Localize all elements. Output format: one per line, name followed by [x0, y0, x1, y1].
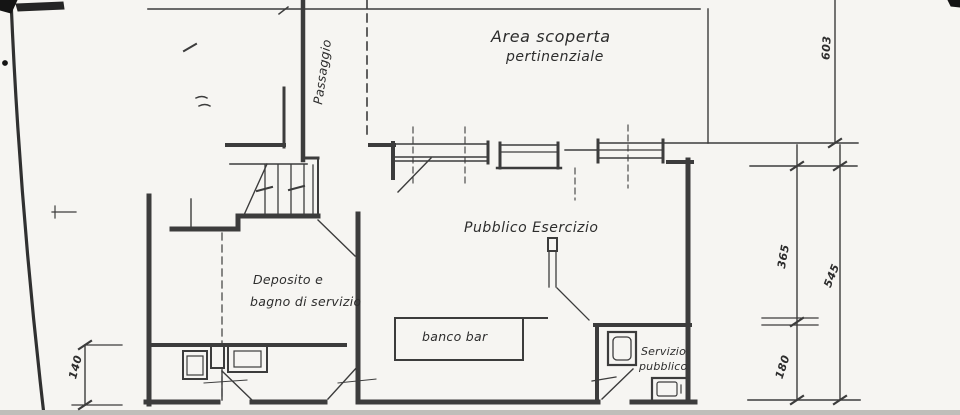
dim-text-180: 180	[773, 353, 793, 380]
dim-text-545: 545	[821, 262, 842, 289]
label-pubblico-esercizio: Pubblico Esercizio	[464, 220, 598, 236]
fixture-icon-inner	[187, 356, 203, 375]
sink-icon-inner	[657, 382, 677, 396]
door-swing	[557, 288, 589, 320]
label-servizio-line1: Servizio	[641, 345, 686, 358]
door-swing	[398, 158, 431, 192]
column	[548, 238, 557, 251]
pen-squiggle-mark	[196, 97, 210, 107]
dimension-annotations	[72, 0, 860, 409]
scanned-floor-plan: Area scoperta pertinenziale Passaggio Pu…	[0, 0, 960, 415]
pen-slash-mark	[184, 44, 196, 51]
scan-edge-line	[11, 0, 44, 415]
label-area-scoperta-line1: Area scoperta	[490, 27, 611, 46]
label-deposito-line1: Deposito e	[253, 272, 323, 287]
deposito-top-wall	[172, 216, 318, 229]
labels: Area scoperta pertinenziale Passaggio Pu…	[66, 27, 842, 380]
dim-slashes	[79, 139, 846, 409]
scan-streak	[16, 2, 64, 11]
partition-stub	[211, 346, 224, 368]
door-swing	[602, 369, 633, 399]
dim-text-603: 603	[819, 35, 833, 60]
door-swing	[222, 371, 252, 400]
scan-corner-right	[948, 0, 960, 7]
toilet-icon-inner	[613, 337, 631, 360]
windows	[370, 125, 663, 200]
stairs	[230, 164, 313, 215]
tick-mark	[279, 7, 288, 14]
scan-corner-blob	[0, 0, 17, 13]
fixture-icon-inner	[234, 351, 261, 367]
label-deposito-line2: bagno di servizio	[250, 294, 361, 309]
scan-dot	[3, 61, 8, 66]
door-tick	[204, 380, 247, 383]
courtyard-outline	[148, 0, 708, 160]
scan-bottom-band	[0, 410, 960, 415]
label-passaggio: Passaggio	[310, 38, 334, 105]
floor-plan-drawing: Area scoperta pertinenziale Passaggio Pu…	[0, 0, 960, 415]
label-servizio-line2: pubblico	[638, 360, 687, 373]
label-area-scoperta-line2: pertinenziale	[505, 49, 604, 65]
dim-text-140: 140	[66, 354, 85, 381]
door-swing	[318, 220, 355, 256]
dim-text-365: 365	[775, 243, 792, 269]
scan-artifacts	[0, 0, 960, 415]
label-banco-bar: banco bar	[422, 329, 488, 344]
